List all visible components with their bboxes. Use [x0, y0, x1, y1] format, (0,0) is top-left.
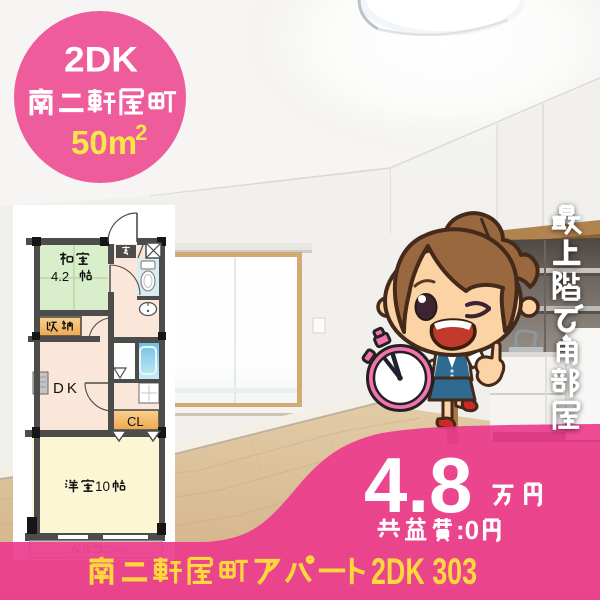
svg-text:DK: DK	[53, 380, 80, 397]
svg-text::0: :0	[456, 515, 479, 545]
svg-text:2DK: 2DK	[64, 41, 138, 80]
svg-text:4.2: 4.2	[51, 269, 69, 284]
svg-text:50m2: 50m2	[71, 120, 147, 161]
svg-text:10: 10	[95, 479, 110, 494]
svg-text:2DK 303: 2DK 303	[371, 551, 477, 592]
svg-text:CL: CL	[127, 414, 144, 429]
